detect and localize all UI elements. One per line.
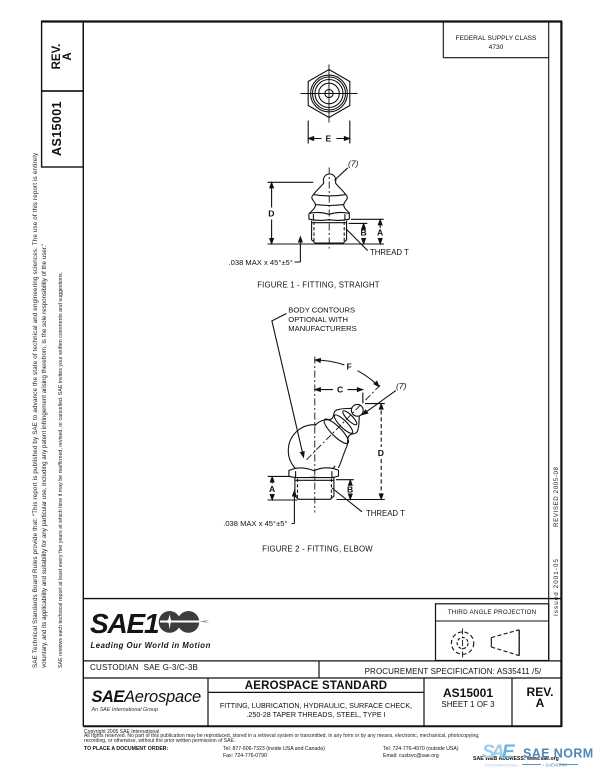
svg-text:OPTIONAL WITH: OPTIONAL WITH (288, 315, 348, 324)
svg-text:D: D (268, 209, 274, 219)
svg-text:E: E (326, 134, 332, 144)
svg-text:(7): (7) (396, 381, 407, 391)
svg-text:A: A (377, 228, 383, 238)
svg-text:BODY CONTOURS: BODY CONTOURS (288, 306, 355, 315)
svg-text:.038 MAX x 45°±5°: .038 MAX x 45°±5° (223, 519, 287, 528)
svg-text:MANUFACTURERS: MANUFACTURERS (288, 324, 356, 333)
svg-text:.038 MAX x 45°±5°: .038 MAX x 45°±5° (229, 258, 293, 267)
svg-text:F: F (347, 362, 352, 372)
svg-text:SAE1: SAE1 (90, 608, 159, 639)
svg-text:SAE NORM: SAE NORM (523, 747, 594, 761)
svg-text:C: C (337, 385, 343, 395)
svg-text:THREAD T: THREAD T (370, 248, 409, 257)
svg-text:A: A (269, 484, 275, 494)
svg-text:THREAD T: THREAD T (366, 509, 405, 518)
svg-text:B: B (347, 484, 353, 494)
svg-text:(7): (7) (348, 159, 359, 169)
svg-text:E: E (502, 742, 516, 763)
svg-text:INTERNATIONAL.: INTERNATIONAL. (485, 763, 520, 768)
svg-text:B: B (361, 228, 367, 238)
svg-text:› SAENORM: › SAENORM (543, 762, 567, 767)
svg-text:D: D (378, 448, 384, 458)
svg-text:FIGURE 2 - FITTING, ELBOW: FIGURE 2 - FITTING, ELBOW (262, 544, 373, 553)
svg-text:Leading Our World in Motion: Leading Our World in Motion (91, 641, 211, 650)
svg-text:FIGURE 1 - FITTING, STRAIGHT: FIGURE 1 - FITTING, STRAIGHT (257, 280, 380, 289)
